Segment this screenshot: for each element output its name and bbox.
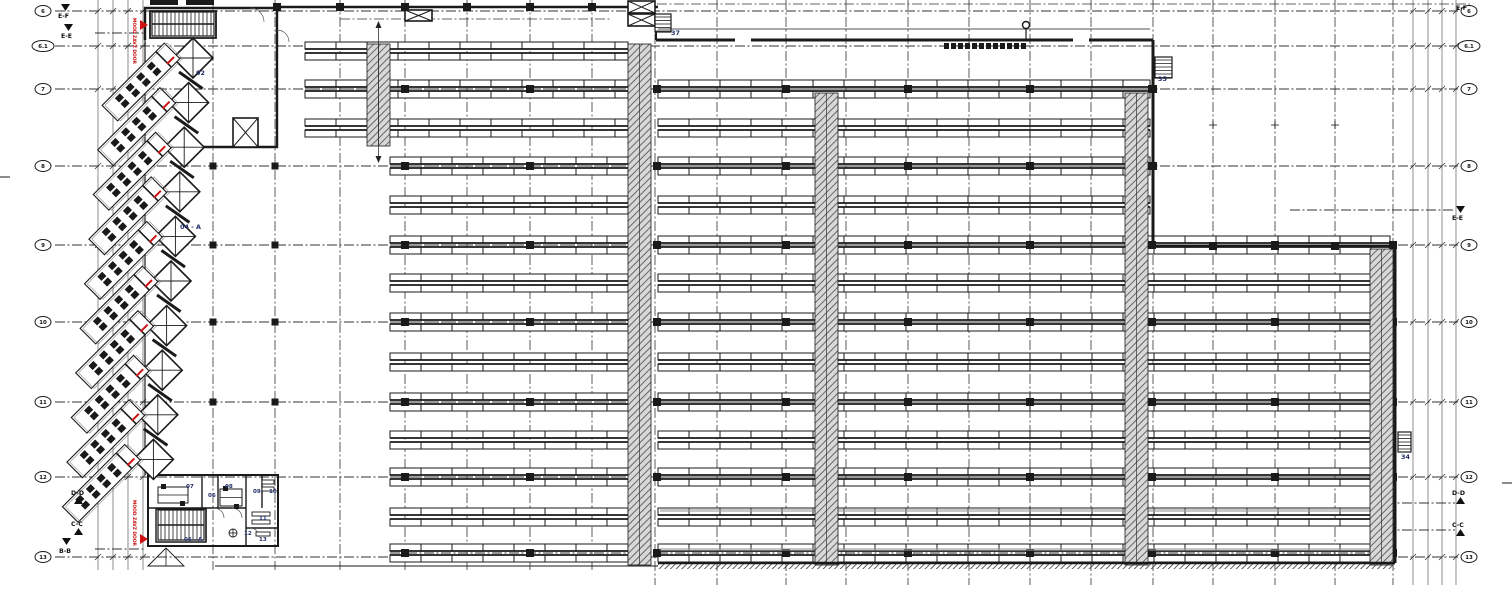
rack-band <box>390 247 628 254</box>
grid-bubble-label: 13 <box>1465 555 1473 561</box>
rack-band <box>390 555 628 562</box>
column-square <box>782 85 790 93</box>
column-square <box>904 473 912 481</box>
column-square <box>1149 85 1157 93</box>
grid-bubble-label: 6 <box>1467 9 1471 15</box>
section-arrow-icon <box>64 24 73 31</box>
canopy-teeth <box>979 43 984 49</box>
rack-band <box>390 544 628 551</box>
column-square <box>272 242 279 249</box>
rack-band <box>390 196 628 203</box>
rack-band <box>658 353 1390 360</box>
column-square <box>653 398 661 406</box>
column-square <box>273 3 281 11</box>
hook-circle <box>1023 22 1030 29</box>
column-square <box>1271 318 1279 326</box>
grid-bubble-label: 9 <box>1467 243 1471 249</box>
column-square <box>1026 398 1034 406</box>
column-square <box>401 241 409 249</box>
column-square <box>210 242 217 249</box>
grid-bubble-label: 8 <box>41 164 45 170</box>
column-square <box>904 162 912 170</box>
grid-bubble-label: 7 <box>41 87 45 93</box>
column-square <box>1026 318 1034 326</box>
column-square <box>272 399 279 406</box>
canopy-teeth <box>1021 43 1026 49</box>
column-square <box>526 162 534 170</box>
column-square <box>904 398 912 406</box>
column-square <box>1209 242 1217 250</box>
rack-band <box>658 442 1390 449</box>
section-label: E-E <box>1452 215 1463 222</box>
rack-band <box>658 404 1390 411</box>
section-label: E-E <box>61 33 72 40</box>
column-square <box>782 473 790 481</box>
column-square <box>1148 398 1156 406</box>
rack-band <box>390 404 628 411</box>
office-room-label: 12 <box>244 531 252 537</box>
red-vertical-label: MOOD ZAVZ DOOR <box>131 18 137 65</box>
rack-band <box>305 80 628 87</box>
chair <box>161 484 166 489</box>
canopy-teeth <box>972 43 977 49</box>
rack-band <box>658 393 1390 400</box>
column-square <box>1331 242 1339 250</box>
column-square <box>1149 162 1157 170</box>
canopy-teeth <box>944 43 949 49</box>
rack-band <box>658 519 1390 526</box>
column-square <box>1148 318 1156 326</box>
rack-row <box>305 119 1150 137</box>
chair <box>234 504 239 509</box>
rack-band <box>658 468 1390 475</box>
rack-row <box>390 393 1397 411</box>
section-label: B-B <box>59 548 71 555</box>
canopy-teeth <box>965 43 970 49</box>
column-square <box>401 318 409 326</box>
rack-band <box>305 130 628 137</box>
door-swing-arc <box>232 508 242 518</box>
rack-band <box>658 207 1150 214</box>
column-square <box>526 241 534 249</box>
column-square <box>782 398 790 406</box>
office-room-label: 06 - A <box>184 537 203 543</box>
section-arrow-icon <box>61 4 70 11</box>
rack-band <box>658 236 1390 243</box>
door-swing-arc <box>214 508 224 518</box>
column-square <box>526 549 534 557</box>
column-square <box>272 319 279 326</box>
rack-row <box>390 157 1156 175</box>
column-square <box>401 162 409 170</box>
loading-docks <box>63 38 213 524</box>
column-square <box>210 319 217 326</box>
rack-row <box>390 274 1390 292</box>
rack-band <box>390 431 628 438</box>
red-arrow-icon <box>140 534 148 544</box>
column-square <box>1148 473 1156 481</box>
office-room-label: 09 <box>253 489 261 495</box>
column-square <box>401 473 409 481</box>
conveyor-line <box>660 548 1385 551</box>
column-square <box>653 549 661 557</box>
rack-band <box>390 364 628 371</box>
rack-row <box>390 353 1390 371</box>
rack-band <box>390 468 628 475</box>
rack-rows <box>305 42 1397 562</box>
rack-band <box>390 285 628 292</box>
rack-band <box>658 479 1390 486</box>
rack-band <box>390 442 628 449</box>
rack-band <box>390 168 628 175</box>
section-label: C-C <box>1452 522 1464 529</box>
section-label: E-F <box>1456 5 1467 12</box>
rack-band <box>390 207 628 214</box>
section-label: C-C <box>71 521 83 528</box>
column-square <box>653 241 661 249</box>
floor-plan-canvas: 666.16.17788991010111112121313E-FE-ED-DC… <box>0 0 1512 591</box>
column-square <box>401 398 409 406</box>
column-square <box>653 318 661 326</box>
column-square <box>904 241 912 249</box>
stair <box>1398 432 1411 452</box>
grid-bubble-label: 10 <box>1465 320 1473 326</box>
office-room-label: 11 <box>259 516 267 522</box>
rack-band <box>658 324 1390 331</box>
column-square <box>1271 473 1279 481</box>
rack-band <box>390 274 628 281</box>
column-square <box>1026 162 1034 170</box>
rack-band <box>390 353 628 360</box>
canopy-teeth <box>1007 43 1012 49</box>
section-label: E-F <box>58 13 69 20</box>
column-square <box>463 3 471 11</box>
canopy-teeth <box>951 43 956 49</box>
rack-band <box>390 519 628 526</box>
canopy-teeth <box>1000 43 1005 49</box>
office-room-label: 10 <box>269 489 277 495</box>
rack-band <box>305 119 628 126</box>
door-gap <box>1073 36 1089 44</box>
column-square <box>210 399 217 406</box>
column-square <box>526 3 534 11</box>
section-arrow-icon <box>74 528 83 535</box>
grid-bubble-label: 11 <box>1465 400 1473 406</box>
grid-bubble-label: 9 <box>41 243 45 249</box>
red-vertical-label: MOOD ZAVZ DOOR <box>131 500 137 547</box>
rack-band <box>658 555 1390 562</box>
conveyor-line <box>660 509 1385 512</box>
rack-band <box>390 236 628 243</box>
rack-band <box>305 91 628 98</box>
column-square <box>526 85 534 93</box>
roof-bar <box>186 0 214 5</box>
column-square <box>401 549 409 557</box>
office-room-label: 08 <box>225 484 233 490</box>
door-gap <box>735 36 751 44</box>
rack-band <box>658 247 1390 254</box>
rack-band <box>305 53 628 60</box>
column-square <box>782 162 790 170</box>
arrow-up-icon <box>376 21 382 28</box>
misc-elements <box>658 22 1150 50</box>
hatch-bands <box>367 21 1395 569</box>
column-square <box>1026 473 1034 481</box>
rack-row <box>390 196 1150 214</box>
grid-bubble-label: 12 <box>39 475 47 481</box>
stair <box>158 510 204 540</box>
rack-band <box>390 324 628 331</box>
room-label: 04 - A <box>180 223 201 231</box>
rack-band <box>658 313 1390 320</box>
rack-band <box>658 196 1150 203</box>
canopy-teeth <box>958 43 963 49</box>
floor-plan: 666.16.17788991010111112121313E-FE-ED-DC… <box>0 0 1512 591</box>
rack-band <box>305 42 628 49</box>
column-square <box>336 3 344 11</box>
column-square <box>653 473 661 481</box>
column-square <box>526 398 534 406</box>
column-square <box>904 318 912 326</box>
column-square <box>401 85 409 93</box>
column-square <box>653 162 661 170</box>
rack-row <box>390 468 1397 486</box>
column-square <box>653 85 661 93</box>
rack-band <box>658 119 1150 126</box>
grid-bubble-label: 6.1 <box>38 44 48 50</box>
grid-bubble-label: 6 <box>41 9 45 15</box>
door-swing-arc <box>277 30 289 42</box>
rack-band <box>390 393 628 400</box>
rack-band <box>658 364 1390 371</box>
column-square <box>782 318 790 326</box>
grid-bubble-label: 11 <box>39 400 47 406</box>
rack-band <box>658 431 1390 438</box>
chair <box>180 501 185 506</box>
column-square <box>526 473 534 481</box>
fixture <box>262 480 274 484</box>
roof-bar <box>150 0 178 5</box>
office-room-label: 13 <box>259 537 267 543</box>
column-square <box>588 3 596 11</box>
rack-row <box>390 431 1390 449</box>
column-square <box>272 163 279 170</box>
stair <box>152 12 214 36</box>
fixture <box>256 532 270 536</box>
column-square <box>526 318 534 326</box>
column-square <box>904 85 912 93</box>
grid-bubble-label: 7 <box>1467 87 1471 93</box>
room-label: 02 <box>196 69 205 77</box>
arrow-down-icon <box>376 156 382 163</box>
office-room-label: 06 <box>208 493 216 499</box>
room-label: 35 <box>1158 75 1167 83</box>
grid-bubble-label: 8 <box>1467 164 1471 170</box>
column-square <box>1271 398 1279 406</box>
section-label: D-D <box>71 490 84 497</box>
rack-row <box>305 80 1156 98</box>
rack-band <box>390 508 628 515</box>
canopy-teeth <box>986 43 991 49</box>
section-arrow-icon <box>1456 497 1465 504</box>
section-arrow-icon <box>1456 529 1465 536</box>
section-arrow-icon <box>62 538 71 545</box>
column-square <box>782 241 790 249</box>
column-square <box>1026 241 1034 249</box>
room-label: 37 <box>671 29 680 37</box>
rack-band <box>658 274 1390 281</box>
grid-bubble-label: 6.1 <box>1464 44 1474 50</box>
column-square <box>1026 85 1034 93</box>
column-square <box>1271 242 1279 250</box>
rack-band <box>658 285 1390 292</box>
grid-bubble-label: 12 <box>1465 475 1473 481</box>
rack-row <box>390 313 1397 331</box>
office-room-label: 07 <box>186 484 194 490</box>
canopy-teeth <box>993 43 998 49</box>
rack-row <box>305 42 628 60</box>
section-arrow-icon <box>1456 206 1465 213</box>
room-label: 34 <box>1401 453 1410 461</box>
section-label: D-D <box>1452 490 1465 497</box>
rack-band <box>390 479 628 486</box>
column-square <box>210 163 217 170</box>
rack-band <box>658 130 1150 137</box>
rack-row <box>390 544 1397 562</box>
grid-bubble-label: 13 <box>39 555 47 561</box>
rack-band <box>390 313 628 320</box>
door-swing-arc <box>250 8 264 22</box>
canopy-teeth <box>1014 43 1019 49</box>
grid-bubble-label: 10 <box>39 320 47 326</box>
rack-band <box>390 157 628 164</box>
